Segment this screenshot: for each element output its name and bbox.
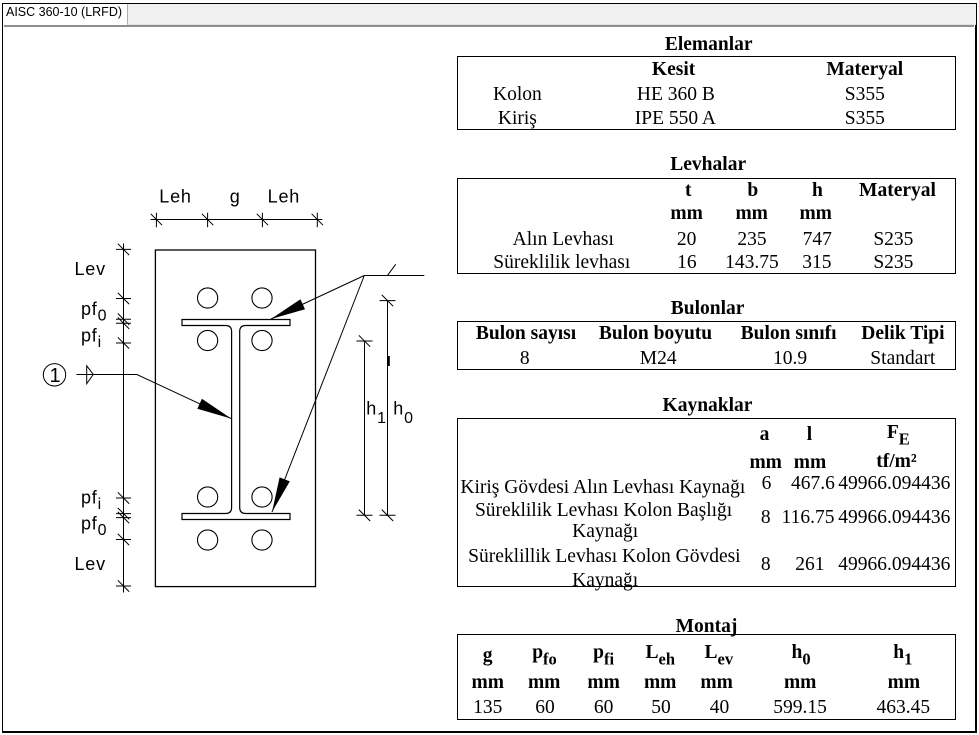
svg-text:pfi: pfi <box>81 326 102 352</box>
svg-text:pf0: pf0 <box>81 514 107 540</box>
svg-text:Leh: Leh <box>159 187 191 207</box>
svg-text:h0: h0 <box>393 398 414 427</box>
svg-text:Leh: Leh <box>268 187 300 207</box>
svg-text:h1: h1 <box>366 398 387 427</box>
svg-text:Lev: Lev <box>75 554 106 574</box>
svg-text:g: g <box>230 187 241 207</box>
svg-text:1: 1 <box>49 365 60 387</box>
svg-text:Lev: Lev <box>75 259 106 279</box>
svg-text:pf0: pf0 <box>81 299 107 325</box>
svg-text:pfi: pfi <box>81 488 102 514</box>
